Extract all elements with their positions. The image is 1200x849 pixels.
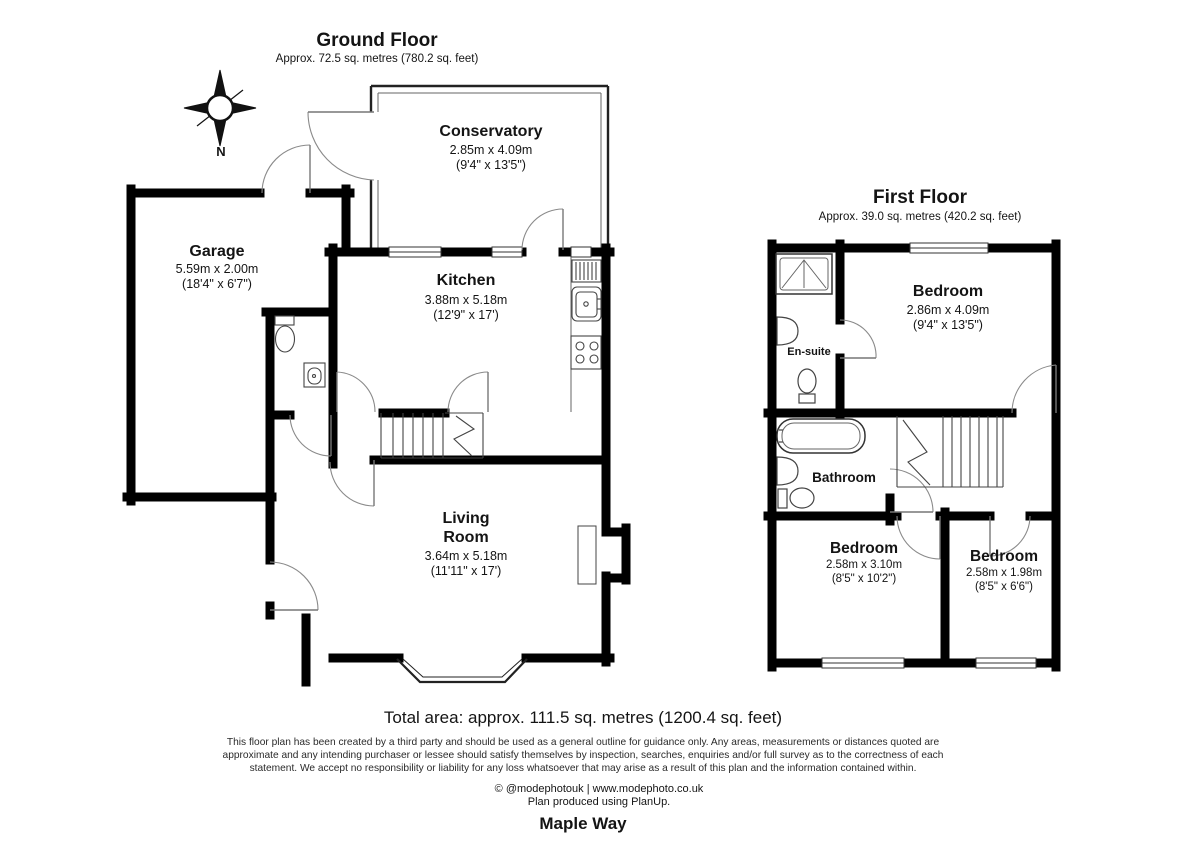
compass-north-label: N	[216, 144, 225, 159]
kitchen-metric: 3.88m x 5.18m	[425, 293, 508, 307]
kitchen-fixtures	[571, 257, 601, 412]
disclaimer-text: This floor plan has been created by a th…	[205, 736, 961, 776]
living-room-metric: 3.64m x 5.18m	[425, 549, 508, 563]
garage-label: Garage	[189, 243, 244, 261]
first-floor-stairs	[897, 416, 1003, 487]
draining-board-icon	[572, 260, 601, 282]
ground-floor-title: Ground Floor	[316, 30, 437, 52]
address-title: Maple Way	[539, 814, 626, 834]
conservatory-metric: 2.85m x 4.09m	[450, 143, 533, 157]
living-room-label-line1: Living	[442, 510, 489, 528]
living-room-imperial: (11'11" x 17')	[431, 564, 502, 578]
bathroom-label: Bathroom	[812, 470, 876, 485]
living-room-alcove	[578, 526, 596, 584]
bedroom-right-metric: 2.58m x 1.98m	[966, 567, 1042, 579]
ground-floor-stairs	[381, 413, 483, 458]
garage-metric: 5.59m x 2.00m	[176, 262, 259, 276]
bathroom-toilet-icon	[778, 488, 814, 508]
bathroom-fixtures	[777, 419, 865, 508]
small-sink-icon	[304, 363, 325, 387]
ground-floor-plan	[127, 86, 626, 682]
bathtub-icon	[777, 419, 865, 453]
bedroom-right-imperial: (8'5" x 6'6")	[975, 581, 1033, 593]
bay-window	[397, 659, 527, 682]
bedroom-main-metric: 2.86m x 4.09m	[907, 303, 990, 317]
garage-imperial: (18'4" x 6'7")	[182, 277, 252, 291]
compass-rose-icon	[184, 70, 256, 146]
ground-floor-area: Approx. 72.5 sq. metres (780.2 sq. feet)	[276, 53, 479, 65]
bedroom-main-label: Bedroom	[913, 283, 983, 301]
bedroom-right-label: Bedroom	[970, 548, 1038, 566]
ensuite-sink-icon	[777, 317, 798, 345]
shower-icon	[776, 254, 832, 294]
produced-line: Plan produced using PlanUp.	[528, 796, 670, 808]
kitchen-imperial: (12'9" x 17')	[433, 308, 499, 322]
conservatory-imperial: (9'4" x 13'5")	[456, 158, 526, 172]
bedroom-left-metric: 2.58m x 3.10m	[826, 559, 902, 571]
stove-icon	[571, 336, 601, 369]
bedroom-left-imperial: (8'5" x 10'2")	[832, 573, 896, 585]
bedroom-left-label: Bedroom	[830, 540, 898, 558]
wc-fixtures	[275, 316, 325, 387]
living-room-label-line2: Room	[443, 529, 488, 547]
bathroom-sink-icon	[777, 457, 798, 485]
floorplan-page: Ground Floor Approx. 72.5 sq. metres (78…	[0, 0, 1200, 849]
kitchen-label: Kitchen	[437, 272, 496, 290]
total-area-label: Total area: approx. 111.5 sq. metres (12…	[384, 708, 782, 728]
toilet-icon	[275, 316, 295, 352]
credit-line: © @modephotouk | www.modephoto.co.uk	[495, 783, 704, 795]
conservatory-label: Conservatory	[439, 123, 542, 141]
first-floor-title: First Floor	[873, 187, 967, 209]
ground-floor-doors	[262, 112, 563, 610]
ensuite-label: En-suite	[787, 346, 830, 358]
first-floor-area: Approx. 39.0 sq. metres (420.2 sq. feet)	[819, 211, 1022, 223]
bedroom-main-imperial: (9'4" x 13'5")	[913, 318, 983, 332]
ensuite-fixtures	[776, 254, 832, 403]
ensuite-toilet-icon	[798, 369, 816, 403]
kitchen-sink-icon	[572, 287, 601, 321]
